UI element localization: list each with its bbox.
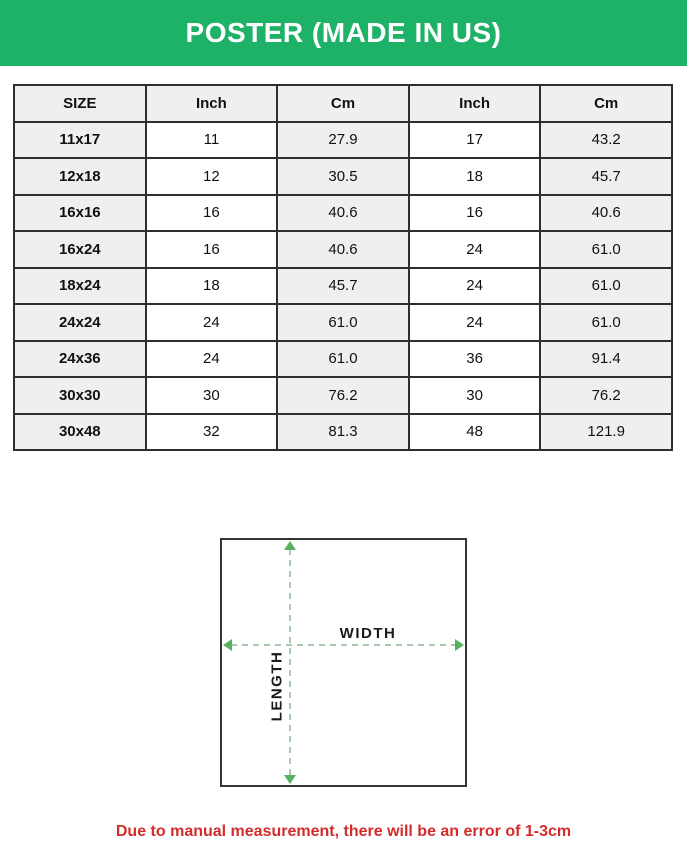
- cm-cell: 40.6: [277, 195, 409, 232]
- measurement-note: Due to manual measurement, there will be…: [0, 823, 687, 841]
- inch-cell: 36: [409, 341, 541, 378]
- inch-cell: 30: [146, 377, 278, 414]
- cm-cell: 61.0: [540, 268, 672, 305]
- cm-cell: 30.5: [277, 158, 409, 195]
- page-title-banner: POSTER (MADE IN US): [0, 0, 687, 66]
- table-row: 18x24 18 45.7 24 61.0: [14, 268, 672, 305]
- table-row: 24x24 24 61.0 24 61.0: [14, 304, 672, 341]
- inch-cell: 16: [146, 231, 278, 268]
- cm-cell: 61.0: [277, 341, 409, 378]
- inch-cell: 32: [146, 414, 278, 451]
- inch-cell: 24: [146, 304, 278, 341]
- arrow-up-icon: [284, 541, 296, 550]
- width-dashed-line: [231, 644, 456, 646]
- size-cell: 24x24: [14, 304, 146, 341]
- column-header-cm-1: Cm: [277, 85, 409, 122]
- table-row: 30x30 30 76.2 30 76.2: [14, 377, 672, 414]
- table-row: 30x48 32 81.3 48 121.9: [14, 414, 672, 451]
- length-label: LENGTH: [270, 651, 285, 722]
- size-cell: 16x24: [14, 231, 146, 268]
- inch-cell: 48: [409, 414, 541, 451]
- inch-cell: 18: [409, 158, 541, 195]
- size-cell: 24x36: [14, 341, 146, 378]
- cm-cell: 43.2: [540, 122, 672, 159]
- cm-cell: 40.6: [277, 231, 409, 268]
- cm-cell: 76.2: [540, 377, 672, 414]
- cm-cell: 45.7: [540, 158, 672, 195]
- inch-cell: 24: [409, 268, 541, 305]
- size-chart-page: POSTER (MADE IN US) SIZE Inch Cm Inch Cm…: [0, 0, 687, 860]
- inch-cell: 24: [409, 231, 541, 268]
- size-cell: 30x48: [14, 414, 146, 451]
- table-row: 16x16 16 40.6 16 40.6: [14, 195, 672, 232]
- column-header-size: SIZE: [14, 85, 146, 122]
- column-header-inch-2: Inch: [409, 85, 541, 122]
- cm-cell: 91.4: [540, 341, 672, 378]
- cm-cell: 61.0: [540, 231, 672, 268]
- page-title: POSTER (MADE IN US): [186, 17, 502, 49]
- cm-cell: 45.7: [277, 268, 409, 305]
- inch-cell: 24: [146, 341, 278, 378]
- cm-cell: 27.9: [277, 122, 409, 159]
- table-row: 12x18 12 30.5 18 45.7: [14, 158, 672, 195]
- column-header-inch-1: Inch: [146, 85, 278, 122]
- size-cell: 11x17: [14, 122, 146, 159]
- inch-cell: 12: [146, 158, 278, 195]
- arrow-down-icon: [284, 775, 296, 784]
- table-row: 16x24 16 40.6 24 61.0: [14, 231, 672, 268]
- inch-cell: 17: [409, 122, 541, 159]
- table-row: 24x36 24 61.0 36 91.4: [14, 341, 672, 378]
- table-header-row: SIZE Inch Cm Inch Cm: [14, 85, 672, 122]
- dimension-diagram: WIDTH LENGTH: [220, 538, 467, 787]
- inch-cell: 24: [409, 304, 541, 341]
- cm-cell: 61.0: [277, 304, 409, 341]
- length-dashed-line: [289, 549, 291, 776]
- arrow-right-icon: [455, 639, 464, 651]
- column-header-cm-2: Cm: [540, 85, 672, 122]
- size-cell: 12x18: [14, 158, 146, 195]
- size-cell: 30x30: [14, 377, 146, 414]
- inch-cell: 16: [409, 195, 541, 232]
- size-table: SIZE Inch Cm Inch Cm 11x17 11 27.9 17 43…: [13, 84, 673, 451]
- cm-cell: 76.2: [277, 377, 409, 414]
- cm-cell: 61.0: [540, 304, 672, 341]
- inch-cell: 16: [146, 195, 278, 232]
- arrow-left-icon: [223, 639, 232, 651]
- size-cell: 18x24: [14, 268, 146, 305]
- table-row: 11x17 11 27.9 17 43.2: [14, 122, 672, 159]
- size-cell: 16x16: [14, 195, 146, 232]
- cm-cell: 40.6: [540, 195, 672, 232]
- inch-cell: 18: [146, 268, 278, 305]
- width-label: WIDTH: [340, 626, 397, 641]
- cm-cell: 121.9: [540, 414, 672, 451]
- inch-cell: 30: [409, 377, 541, 414]
- inch-cell: 11: [146, 122, 278, 159]
- cm-cell: 81.3: [277, 414, 409, 451]
